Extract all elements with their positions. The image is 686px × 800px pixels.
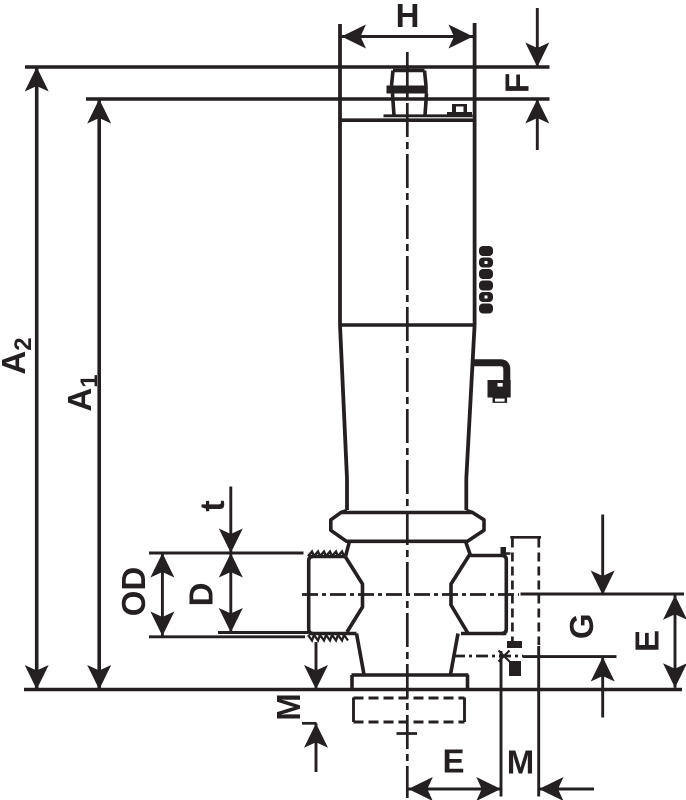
svg-text:OD: OD (115, 567, 152, 617)
svg-text:E: E (442, 743, 464, 780)
svg-text:M: M (507, 744, 535, 781)
svg-text:H: H (396, 0, 420, 34)
svg-text:G: G (563, 613, 600, 639)
svg-text:E: E (629, 630, 666, 652)
svg-text:F: F (499, 73, 536, 93)
svg-text:D: D (183, 583, 220, 607)
svg-text:M: M (270, 693, 307, 721)
svg-text:t: t (194, 500, 232, 511)
